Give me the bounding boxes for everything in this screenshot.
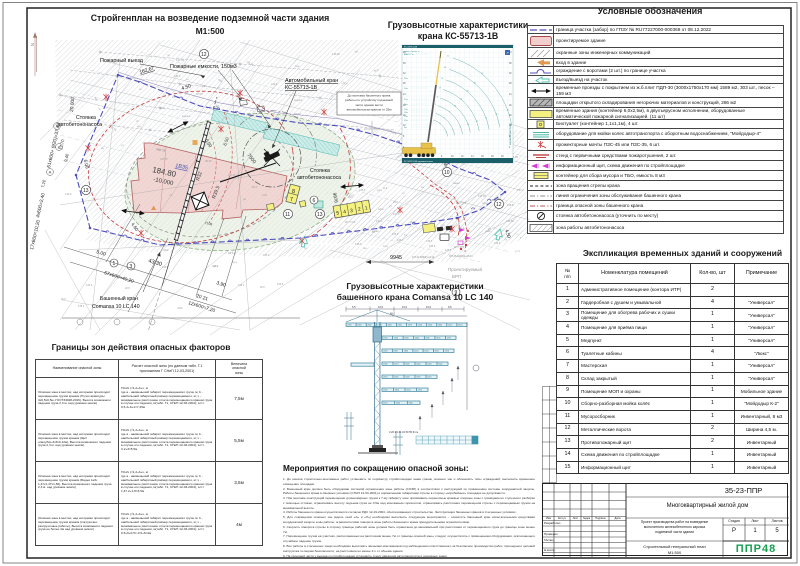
svg-text:143.2: 143.2 <box>271 83 278 86</box>
svg-text:2450: 2450 <box>409 403 413 405</box>
svg-text:2000: 2000 <box>438 325 442 327</box>
svg-text:2000: 2000 <box>416 377 420 379</box>
svg-text:2КЛ: 2КЛ <box>93 96 98 102</box>
svg-text:работы по устройству подземной: работы по устройству подземной <box>345 98 393 102</box>
svg-text:2450: 2450 <box>418 325 422 327</box>
svg-text:13: 13 <box>476 121 478 123</box>
svg-text:5.00: 5.00 <box>95 249 106 258</box>
svg-text:↗: ↗ <box>506 51 509 55</box>
svg-text:3: 3 <box>130 264 133 270</box>
svg-text:30м: 30м <box>404 88 408 90</box>
svg-text:135.6: 135.6 <box>86 284 93 287</box>
svg-text:1470: 1470 <box>394 364 398 366</box>
svg-text:10,0: 10,0 <box>402 305 408 309</box>
svg-text:2450: 2450 <box>406 390 410 392</box>
svg-text:21: 21 <box>507 110 509 112</box>
svg-text:7,20: 7,20 <box>40 179 47 189</box>
svg-text:2000: 2000 <box>415 338 419 340</box>
svg-text:уч 4: уч 4 <box>515 250 520 253</box>
svg-text:Л: Л <box>56 124 59 129</box>
svg-text:Проектируемый: Проектируемый <box>448 266 482 272</box>
svg-text:Пожарные емкости, 150м3: Пожарные емкости, 150м3 <box>170 64 237 70</box>
svg-text:13: 13 <box>439 88 441 90</box>
svg-text:1470: 1470 <box>448 325 452 327</box>
svg-text:135.9: 135.9 <box>445 249 452 252</box>
svg-text:1470: 1470 <box>447 338 451 340</box>
svg-text:КС-55713-1В: КС-55713-1В <box>285 85 318 91</box>
svg-text:12м: 12м <box>404 120 408 122</box>
svg-text:10,0: 10,0 <box>378 305 384 309</box>
svg-text:43.30: 43.30 <box>147 258 162 268</box>
svg-text:1800: 1800 <box>395 390 399 392</box>
svg-text:сущ.: сущ. <box>232 261 238 264</box>
svg-text:13: 13 <box>317 212 323 218</box>
svg-text:2450: 2450 <box>458 325 462 327</box>
svg-text:9: 9 <box>449 111 450 113</box>
svg-text:1: 1 <box>113 261 116 267</box>
svg-text:12: 12 <box>496 202 502 208</box>
svg-text:2000: 2000 <box>383 351 387 353</box>
svg-text:N: N <box>30 43 35 46</box>
svg-text:Стоянка: Стоянка <box>310 168 330 174</box>
svg-text:136.2: 136.2 <box>494 242 501 245</box>
svg-text:1800: 1800 <box>383 338 387 340</box>
svg-text:2000: 2000 <box>427 364 431 366</box>
svg-text:2КЛ: 2КЛ <box>260 286 265 289</box>
svg-text:5: 5 <box>446 132 447 134</box>
svg-text:135.9: 135.9 <box>263 254 270 257</box>
svg-text:1470: 1470 <box>427 377 431 379</box>
svg-text:2000: 2000 <box>416 364 420 366</box>
svg-text:2000: 2000 <box>426 338 430 340</box>
svg-text:2000: 2000 <box>405 377 409 379</box>
svg-text:1470: 1470 <box>383 403 387 405</box>
svg-text:КС-55713-1В: КС-55713-1В <box>404 47 418 49</box>
svg-text:КН 77:09: КН 77:09 <box>454 246 465 249</box>
svg-text:18: 18 <box>444 67 446 69</box>
svg-text:11: 11 <box>454 105 456 107</box>
svg-text:9,5: 9,5 <box>448 305 452 309</box>
svg-text:А: А <box>49 170 52 175</box>
svg-text:10: 10 <box>444 170 450 176</box>
svg-text:1800: 1800 <box>383 364 387 366</box>
svg-text:1800: 1800 <box>436 338 440 340</box>
svg-text:11: 11 <box>467 124 469 126</box>
svg-text:2000: 2000 <box>435 351 439 353</box>
svg-text:вод.: вод. <box>295 65 300 68</box>
svg-text:9,40: 9,40 <box>63 153 70 163</box>
svg-text:12: 12 <box>201 52 207 58</box>
svg-text:136.9: 136.9 <box>65 192 72 196</box>
svg-text:18: 18 <box>496 114 498 116</box>
svg-text:2000: 2000 <box>383 390 387 392</box>
svg-text:Comansa 10 LC 140: Comansa 10 LC 140 <box>92 304 140 310</box>
svg-text:15: 15 <box>441 78 443 80</box>
svg-text:автобетононасоса: автобетононасоса <box>58 122 102 128</box>
svg-text:Стоянка: Стоянка <box>76 115 96 121</box>
svg-text:2450: 2450 <box>418 390 422 392</box>
svg-text:17х600=10,20: 17х600=10,20 <box>29 219 42 250</box>
svg-text:136.2: 136.2 <box>238 284 245 287</box>
svg-text:135.8: 135.8 <box>507 203 514 207</box>
svg-text:137.2: 137.2 <box>174 74 181 78</box>
svg-text:10,0: 10,0 <box>426 305 432 309</box>
svg-text:тр.: тр. <box>98 107 103 111</box>
svg-text:21м: 21м <box>404 109 408 111</box>
svg-text:137.45: 137.45 <box>176 58 184 62</box>
svg-text:7: 7 <box>444 118 445 120</box>
svg-text:КС-55713-1В грузовысотные: КС-55713-1В грузовысотные <box>404 161 434 163</box>
svg-text:Автомобильный кран: Автомобильный кран <box>285 77 338 84</box>
svg-text:Пожарный выезд: Пожарный выезд <box>100 57 144 64</box>
svg-text:1800: 1800 <box>438 364 442 366</box>
svg-text:сущ.: сущ. <box>213 265 219 268</box>
svg-text:27м: 27м <box>404 99 408 101</box>
svg-text:2000: 2000 <box>404 338 408 340</box>
svg-text:длина стрелы, м: длина стрелы, м <box>404 51 420 53</box>
svg-text:9,7-21,7 м: 9,7-21,7 м <box>404 54 414 56</box>
svg-text:1Б: 1Б <box>202 85 205 88</box>
svg-text:водопр.: водопр. <box>294 99 303 102</box>
svg-text:части здания вести: части здания вести <box>355 103 383 107</box>
svg-text:эл.: эл. <box>186 78 190 81</box>
svg-text:И: И <box>58 145 61 150</box>
svg-text:2КЛ: 2КЛ <box>61 298 66 301</box>
svg-text:136.80: 136.80 <box>506 219 514 223</box>
svg-text:2450: 2450 <box>394 377 398 379</box>
svg-text:2000: 2000 <box>367 325 371 327</box>
svg-text:18м: 18м <box>404 112 408 114</box>
svg-text:5: 5 <box>440 123 441 125</box>
svg-text:2450: 2450 <box>388 325 392 327</box>
svg-text:11: 11 <box>285 212 290 218</box>
svg-text:137.45: 137.45 <box>478 194 486 198</box>
svg-text:18: 18 <box>474 82 476 84</box>
svg-text:4х600=2,40: 4х600=2,40 <box>35 192 47 218</box>
svg-text:3 20 24 41 44 50 55 61: 3 20 24 41 44 50 55 61 м <box>389 430 418 434</box>
svg-text:136.80: 136.80 <box>332 52 340 56</box>
svg-text:БРП: БРП <box>452 274 461 279</box>
svg-text:d110: d110 <box>177 307 183 310</box>
svg-text:7: 7 <box>290 197 293 203</box>
svg-text:автомобильным краном г.п 25м: автомобильным краном г.п 25м <box>346 108 391 112</box>
svg-text:d110: d110 <box>163 249 169 252</box>
svg-text:1800: 1800 <box>405 364 409 366</box>
svg-text:21: 21 <box>481 73 483 75</box>
svg-text:характеристики: характеристики <box>508 123 512 145</box>
svg-text:9: 9 <box>460 127 461 129</box>
svg-text:21: 21 <box>447 56 449 58</box>
svg-text:135.9: 135.9 <box>78 305 85 308</box>
svg-text:1800: 1800 <box>357 325 361 327</box>
svg-text:13: 13 <box>83 188 89 194</box>
svg-text:13: 13 <box>460 98 462 100</box>
svg-text:167.45 13(804)+16.04: 167.45 13(804)+16.04 <box>449 255 473 258</box>
svg-text:15: 15 <box>467 91 469 93</box>
svg-text:11: 11 <box>437 96 439 98</box>
svg-text:2450: 2450 <box>383 377 387 379</box>
svg-text:1470: 1470 <box>445 351 449 353</box>
svg-text:135.6: 135.6 <box>277 283 284 286</box>
svg-text:2450: 2450 <box>396 403 400 405</box>
svg-text:1470: 1470 <box>408 325 412 327</box>
svg-text:d110: d110 <box>485 230 491 233</box>
svg-text:5: 5 <box>431 119 432 121</box>
svg-text:45,0: 45,0 <box>390 312 396 316</box>
svg-text:9945: 9945 <box>390 255 402 261</box>
svg-text:До монтажа башенного крана: До монтажа башенного крана <box>348 94 391 98</box>
svg-text:6: 6 <box>313 198 316 204</box>
svg-text:2450: 2450 <box>398 325 402 327</box>
svg-text:2000: 2000 <box>394 338 398 340</box>
svg-text:Башенный кран: Башенный кран <box>100 295 138 302</box>
svg-text:2450: 2450 <box>394 351 398 353</box>
svg-text:7: 7 <box>433 112 434 114</box>
svg-text:137.2: 137.2 <box>517 188 524 192</box>
svg-text:2КЛ: 2КЛ <box>125 287 130 290</box>
svg-text:1800: 1800 <box>404 351 408 353</box>
svg-text:67х600=40,20: 67х600=40,20 <box>103 270 134 285</box>
svg-text:167.32 6(804)+12.10: 167.32 6(804)+12.10 <box>412 256 435 259</box>
svg-text:2000: 2000 <box>428 325 432 327</box>
svg-text:3.90: 3.90 <box>215 280 226 289</box>
svg-text:9: 9 <box>435 104 436 106</box>
svg-text:2000: 2000 <box>414 351 418 353</box>
svg-text:газ.: газ. <box>363 247 367 250</box>
svg-text:2000: 2000 <box>347 325 351 327</box>
svg-text:8: 8 <box>292 189 295 195</box>
svg-text:2450: 2450 <box>424 351 428 353</box>
svg-text:5,5: 5,5 <box>352 305 356 309</box>
svg-text:15: 15 <box>485 118 487 120</box>
svg-text:1470: 1470 <box>377 325 381 327</box>
svg-text:автобетононасоса: автобетононасоса <box>297 175 341 181</box>
svg-text:7: 7 <box>452 129 453 131</box>
svg-text:33м: 33м <box>404 78 408 80</box>
